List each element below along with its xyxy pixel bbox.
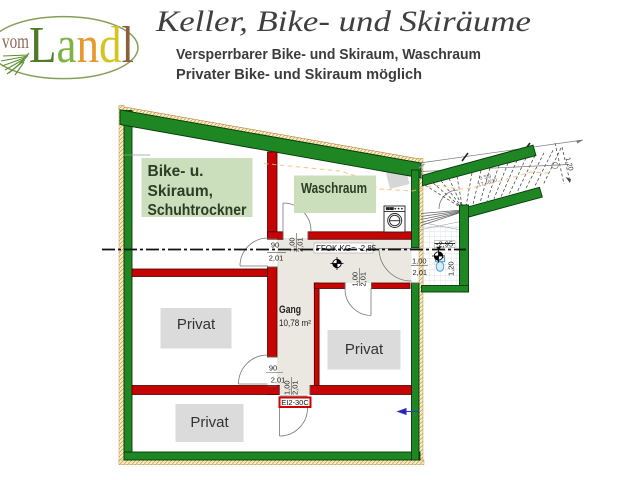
- svg-text:90: 90: [269, 364, 277, 373]
- svg-text:2,01: 2,01: [269, 254, 284, 263]
- svg-text:FFOK KG= -2,85: FFOK KG= -2,85: [316, 244, 377, 253]
- svg-text:vom: vom: [2, 31, 29, 53]
- svg-text:Versperrbarer Bike- und Skirau: Versperrbarer Bike- und Skiraum, Waschra…: [176, 46, 481, 63]
- svg-text:10,78 m²: 10,78 m²: [279, 318, 311, 328]
- svg-text:Waschraum: Waschraum: [301, 181, 367, 197]
- svg-text:Privater Bike- und Skiraum mög: Privater Bike- und Skiraum möglich: [176, 66, 422, 83]
- svg-text:Keller, Bike- und Skiräume: Keller, Bike- und Skiräume: [155, 5, 531, 38]
- svg-text:1,00: 1,00: [412, 257, 427, 266]
- svg-text:Privat: Privat: [190, 414, 229, 431]
- svg-text:Schuhtrockner: Schuhtrockner: [148, 202, 247, 219]
- svg-text:2,01: 2,01: [359, 272, 368, 287]
- svg-text:2,01: 2,01: [296, 237, 305, 252]
- svg-text:Gang: Gang: [279, 304, 301, 316]
- svg-text:90: 90: [271, 241, 279, 250]
- svg-text:Landl: Landl: [29, 17, 134, 74]
- svg-text:EI2-30C: EI2-30C: [281, 398, 309, 407]
- svg-text:Privat: Privat: [345, 341, 384, 358]
- svg-text:Bike- u.: Bike- u.: [148, 163, 204, 180]
- svg-text:Privat: Privat: [177, 316, 216, 333]
- svg-text:2,01: 2,01: [291, 380, 300, 395]
- svg-text:2,01: 2,01: [413, 268, 428, 277]
- svg-text:1,20: 1,20: [447, 261, 456, 276]
- svg-text:Skiraum,: Skiraum,: [148, 183, 213, 200]
